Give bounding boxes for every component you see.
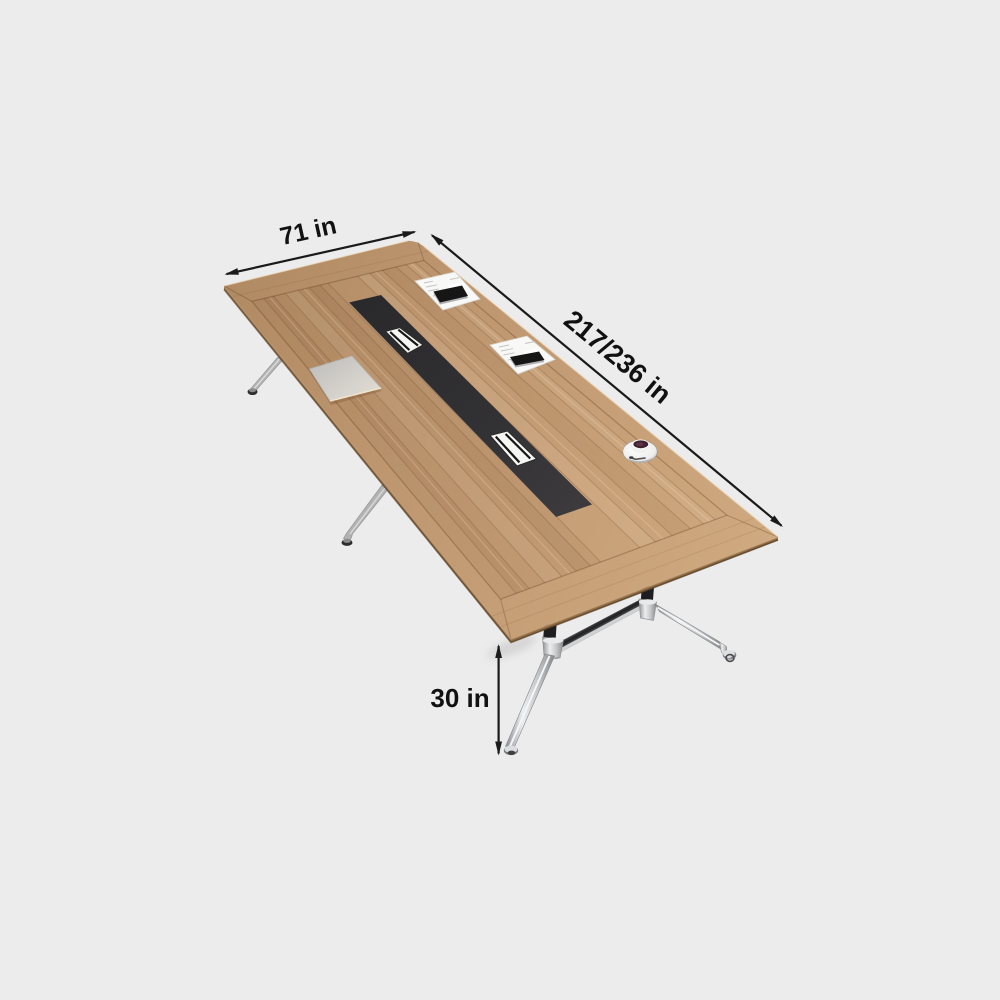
svg-text:30 in: 30 in [430, 683, 489, 713]
